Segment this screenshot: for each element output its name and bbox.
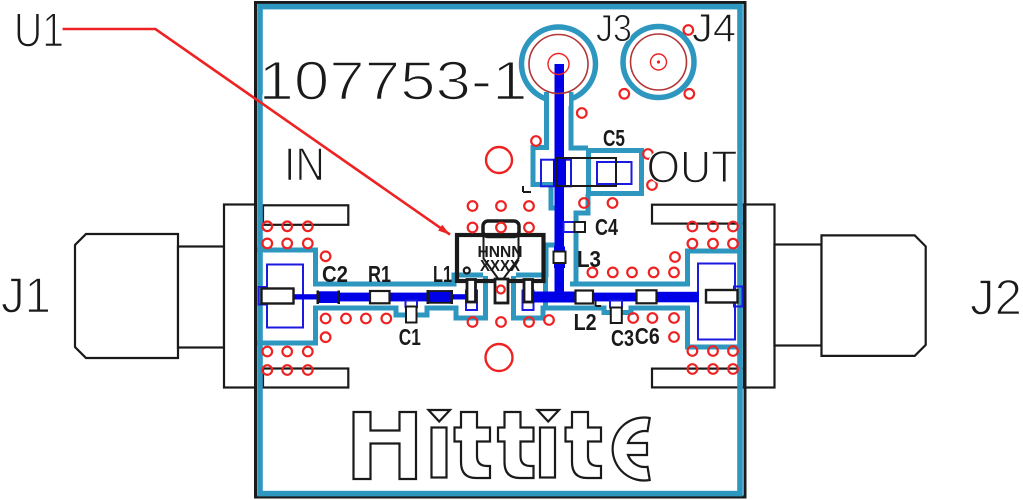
svg-text:C3: C3	[611, 325, 634, 351]
svg-text:C6: C6	[635, 323, 660, 349]
svg-text:J4: J4	[692, 7, 736, 51]
svg-text:C4: C4	[595, 214, 618, 240]
svg-text:C1: C1	[399, 324, 421, 350]
svg-text:L1: L1	[433, 261, 452, 287]
svg-text:L3: L3	[577, 246, 601, 272]
svg-text:XXXX: XXXX	[480, 258, 520, 275]
svg-text:R1: R1	[368, 261, 391, 287]
svg-text:L2: L2	[574, 309, 597, 335]
svg-text:J1: J1	[1, 268, 51, 324]
svg-text:J3: J3	[596, 8, 632, 50]
svg-text:C5: C5	[603, 125, 625, 151]
svg-text:C2: C2	[322, 261, 348, 287]
svg-text:OUT: OUT	[647, 142, 738, 193]
svg-text:107753-1: 107753-1	[259, 49, 528, 111]
svg-text:IN: IN	[284, 138, 325, 191]
svg-text:U1: U1	[14, 5, 64, 58]
svg-text:J2: J2	[970, 270, 1022, 326]
